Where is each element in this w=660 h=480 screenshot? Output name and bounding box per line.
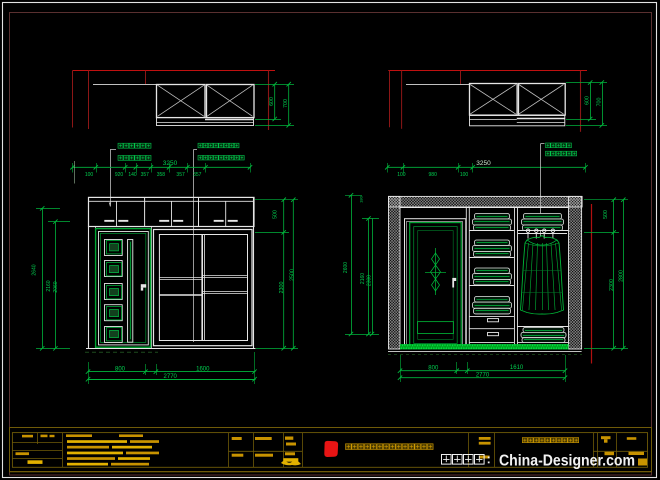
svg-text:2770: 2770: [164, 374, 178, 380]
svg-text:357: 357: [141, 172, 150, 178]
svg-text:600: 600: [269, 97, 275, 106]
svg-text:100: 100: [397, 172, 406, 178]
svg-text:700: 700: [283, 99, 289, 108]
svg-text:2600: 2600: [343, 262, 349, 273]
svg-text:100: 100: [460, 172, 469, 178]
svg-text:2500: 2500: [289, 269, 295, 281]
svg-text:100: 100: [85, 172, 94, 178]
svg-text:800: 800: [115, 366, 126, 372]
svg-text:920: 920: [115, 172, 124, 178]
svg-text:2300: 2300: [279, 282, 285, 294]
svg-text:140: 140: [128, 172, 137, 178]
svg-text:357: 357: [176, 172, 185, 178]
svg-text:980: 980: [429, 172, 438, 178]
svg-text:1600: 1600: [196, 366, 210, 372]
svg-text:3250: 3250: [476, 160, 491, 167]
svg-text:3250: 3250: [163, 160, 178, 167]
svg-text:600: 600: [585, 96, 591, 105]
svg-text:700: 700: [597, 98, 603, 107]
svg-text:China-Designer.com: China-Designer.com: [499, 452, 635, 469]
svg-text:2060: 2060: [53, 281, 59, 292]
svg-text:500: 500: [273, 210, 279, 219]
svg-text:358: 358: [157, 172, 166, 178]
svg-text:2160: 2160: [360, 273, 366, 284]
svg-text:2640: 2640: [32, 264, 38, 275]
svg-text:357: 357: [193, 172, 202, 178]
svg-text:180: 180: [359, 195, 364, 202]
svg-text:2770: 2770: [476, 372, 490, 378]
svg-text:2300: 2300: [609, 279, 615, 291]
svg-text:500: 500: [603, 210, 609, 219]
svg-text:800: 800: [428, 366, 439, 372]
svg-text:2300: 2300: [367, 275, 373, 286]
svg-text:1610: 1610: [510, 365, 524, 371]
svg-text:2800: 2800: [619, 270, 625, 282]
svg-text:2160: 2160: [46, 280, 52, 291]
